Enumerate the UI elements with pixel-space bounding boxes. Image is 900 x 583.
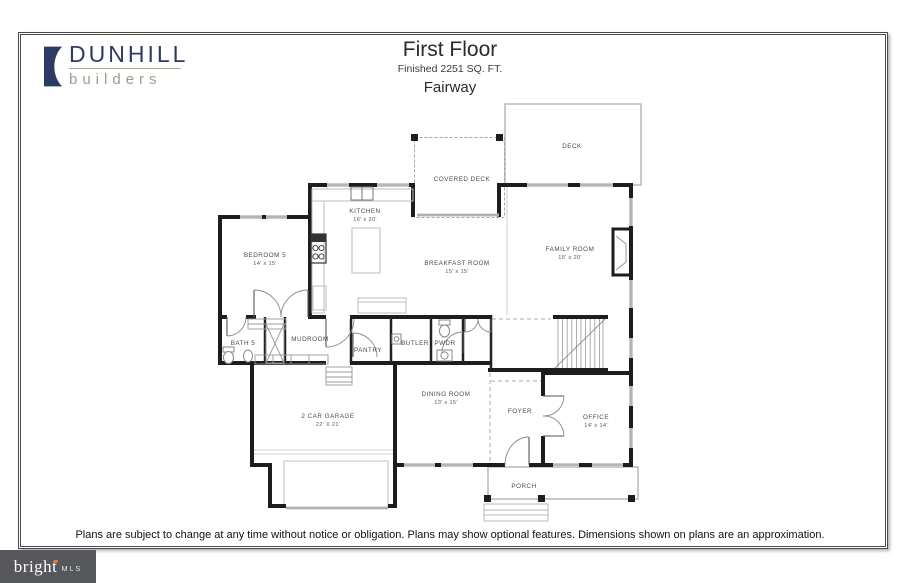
room-label-breakfast: BREAKFAST ROOM — [424, 260, 489, 267]
room-label-pantry: PANTRY — [354, 347, 382, 354]
room-label-garage: 2 CAR GARAGE — [301, 413, 354, 420]
room-label-butler: BUTLER — [401, 340, 429, 347]
room-label-dining: DINING ROOM — [422, 391, 471, 398]
mls-suffix-text: MLS — [61, 564, 82, 573]
room-label-bedroom5: BEDROOM 5 — [244, 252, 286, 259]
room-label-foyer: FOYER — [508, 408, 532, 415]
room-dims-dining: 13' x 15' — [434, 400, 458, 406]
room-dims-garage: 22' X 21' — [316, 422, 340, 428]
porch-outline — [484, 467, 638, 521]
room-dims-bedroom5: 14' x 15' — [253, 261, 277, 267]
room-label-family: FAMILY ROOM — [546, 246, 595, 253]
room-dims-breakfast: 15' x 15' — [445, 269, 469, 275]
room-dims-office: 14' x 14' — [584, 423, 608, 429]
ceiling-break-lines — [254, 187, 551, 507]
room-label-pwdr: PWDR — [434, 340, 455, 347]
garage-steps-icon — [326, 367, 352, 385]
disclaimer-text: Plans are subject to change at any time … — [0, 529, 900, 541]
room-label-porch: PORCH — [511, 483, 536, 490]
room-dims-family: 15' x 20' — [558, 255, 582, 261]
main-stairs-icon — [555, 319, 605, 368]
room-label-deck: DECK — [562, 143, 582, 150]
room-label-bath5: BATH 5 — [231, 340, 256, 347]
room-label-kitchen: KITCHEN — [349, 208, 380, 215]
windows — [240, 185, 631, 465]
room-dims-kitchen: 16' x 20' — [353, 217, 377, 223]
bright-mls-logo: bright MLS — [0, 550, 96, 583]
floor-plan: DECK COVERED DECK KITCHEN 16' x 20' BEDR… — [0, 0, 900, 583]
butler-appliance-icon — [392, 334, 401, 344]
shower-icon — [266, 324, 284, 363]
room-label-covered-deck: COVERED DECK — [434, 176, 491, 183]
room-label-office: OFFICE — [583, 414, 609, 421]
mls-accent-icon — [53, 560, 59, 564]
room-label-mudroom: MUDROOM — [291, 336, 328, 343]
mls-brand-text: bright — [14, 557, 58, 577]
